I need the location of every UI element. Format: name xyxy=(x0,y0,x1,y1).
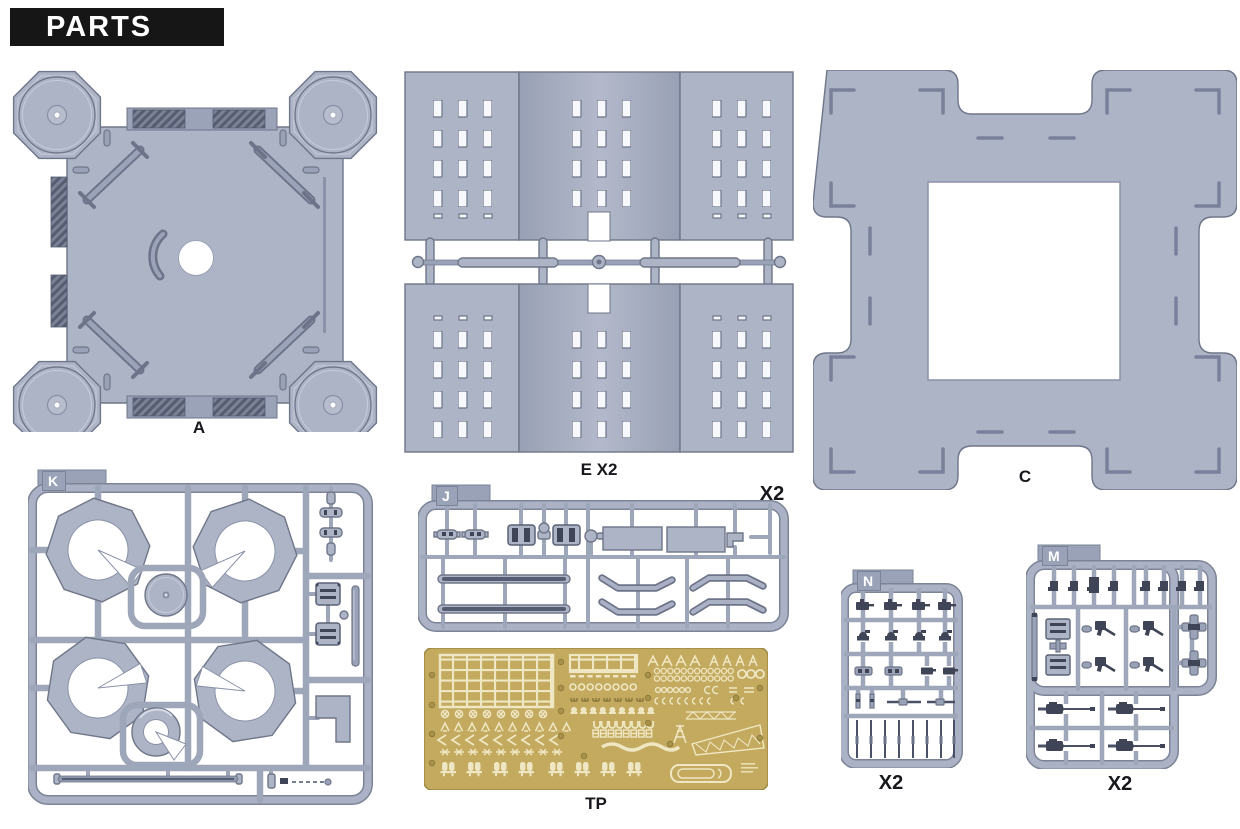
n-barrels xyxy=(856,720,956,758)
part-n-drawing xyxy=(841,568,963,768)
center-opening xyxy=(928,182,1120,380)
parts-sheet: PARTS xyxy=(0,0,1240,829)
tp-crowns xyxy=(571,707,655,714)
k-disc xyxy=(131,568,203,626)
part-m-tag: M xyxy=(1042,546,1068,566)
m-mid-guns xyxy=(1082,621,1163,672)
part-e-drawing xyxy=(403,66,795,458)
tp-clips-dark xyxy=(571,698,643,701)
part-c-label: C xyxy=(813,467,1237,487)
m-left-parts xyxy=(1032,613,1070,681)
part-m: M X2 xyxy=(1026,543,1218,795)
part-j-label: X2 xyxy=(752,483,792,506)
part-c: C xyxy=(813,70,1237,490)
part-k: K xyxy=(28,468,374,813)
part-a-drawing xyxy=(12,62,386,432)
part-c-drawing xyxy=(813,70,1237,490)
e-top-panel xyxy=(405,72,793,241)
part-j-drawing xyxy=(418,483,790,633)
part-e-label: E X2 xyxy=(403,460,795,480)
part-m-label: X2 xyxy=(1026,773,1214,796)
part-a: A xyxy=(12,62,386,447)
part-tp: TP xyxy=(424,648,768,818)
part-n-label: X2 xyxy=(841,772,941,795)
e-bottom-panel xyxy=(405,284,793,452)
part-k-tag: K xyxy=(42,471,66,491)
part-tp-label: TP xyxy=(424,794,768,814)
part-j: J X2 xyxy=(418,483,790,633)
center-hole xyxy=(179,241,214,276)
part-j-tag: J xyxy=(436,486,458,506)
j-chevrons xyxy=(602,578,763,612)
page-title: PARTS xyxy=(10,8,224,46)
part-n: N X2 xyxy=(841,568,963,794)
part-m-drawing xyxy=(1026,543,1218,769)
part-tp-drawing xyxy=(424,648,768,790)
part-k-drawing xyxy=(28,468,374,813)
part-n-tag: N xyxy=(857,571,881,591)
part-e: E X2 xyxy=(403,66,795,478)
part-a-label: A xyxy=(12,418,386,438)
e-runner xyxy=(413,238,786,286)
k-small-parts xyxy=(306,488,359,742)
